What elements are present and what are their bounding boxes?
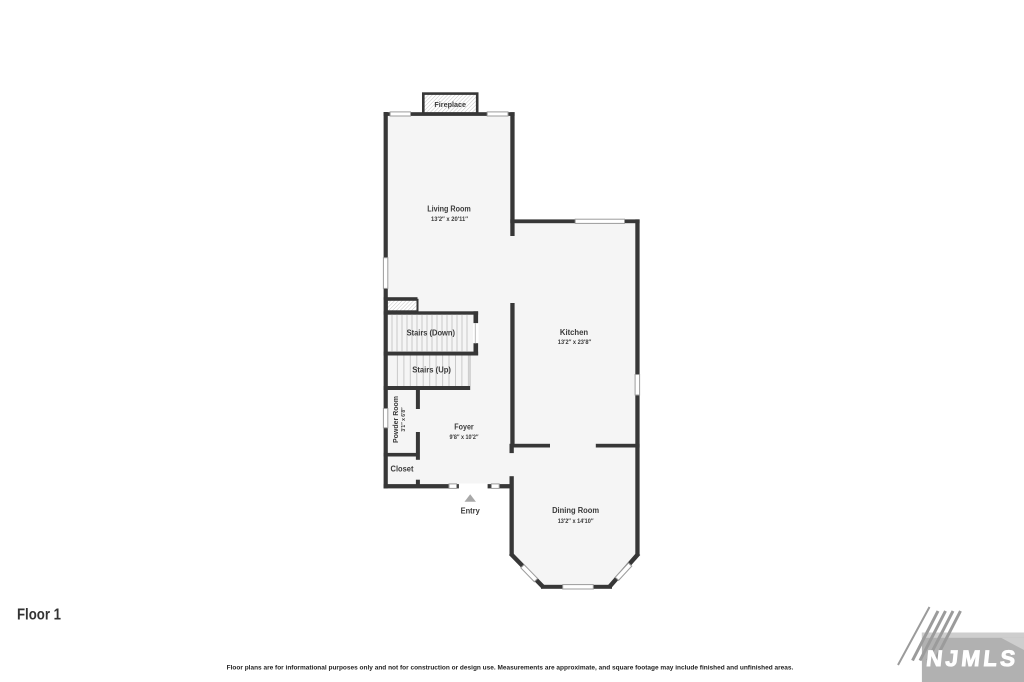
svg-text:13′2″ x 23′8″: 13′2″ x 23′8″ xyxy=(558,339,591,346)
svg-text:Powder Room: Powder Room xyxy=(393,396,400,443)
svg-text:Closet: Closet xyxy=(391,464,414,473)
svg-text:NJMLS: NJMLS xyxy=(925,646,1020,671)
svg-text:Entry: Entry xyxy=(461,506,480,516)
svg-text:Stairs (Up): Stairs (Up) xyxy=(412,364,451,374)
svg-text:Foyer: Foyer xyxy=(454,422,474,432)
svg-text:Kitchen: Kitchen xyxy=(560,327,588,337)
svg-text:Dining Room: Dining Room xyxy=(552,505,599,515)
svg-text:Floor 1: Floor 1 xyxy=(17,606,61,623)
svg-text:3′1″ x 6′8″: 3′1″ x 6′8″ xyxy=(401,407,407,432)
svg-text:Stairs (Down): Stairs (Down) xyxy=(407,328,456,338)
svg-text:Floor plans are for informatio: Floor plans are for informational purpos… xyxy=(227,665,794,672)
svg-text:13′2″ x 20′11″: 13′2″ x 20′11″ xyxy=(431,216,468,223)
svg-text:Fireplace: Fireplace xyxy=(434,100,466,109)
svg-text:9′8″ x 10′2″: 9′8″ x 10′2″ xyxy=(450,434,479,441)
svg-text:Living Room: Living Room xyxy=(427,204,471,214)
svg-text:13′2″ x 14′10″: 13′2″ x 14′10″ xyxy=(558,518,594,525)
